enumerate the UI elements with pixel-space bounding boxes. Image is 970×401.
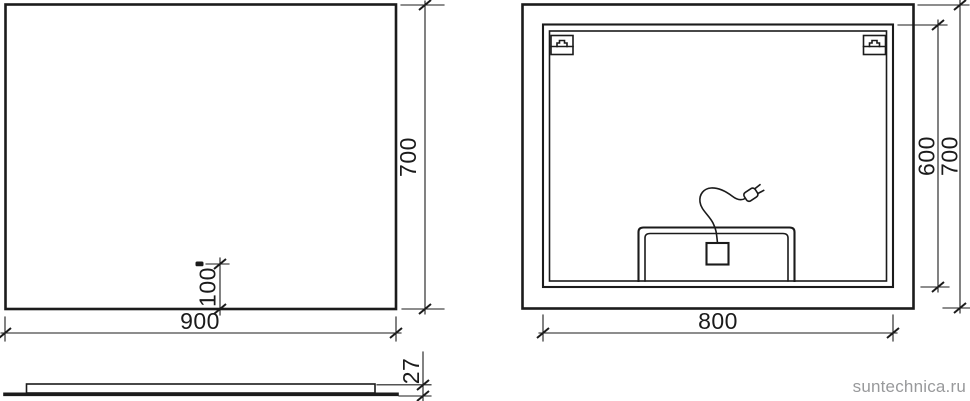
mirror-technical-drawing: 100 700 900 [0, 0, 970, 401]
side-view: 27 [5, 352, 431, 401]
back-view: 800 600 700 [523, 0, 970, 341]
backlight-housing-profile [27, 384, 376, 393]
dim-back-width: 800 [537, 308, 899, 341]
bracket-body [551, 36, 573, 55]
led-driver-box [707, 243, 729, 265]
mounting-bracket-right-icon [864, 36, 886, 55]
dim-front-width: 900 [0, 308, 402, 341]
touch-sensor-mark [196, 262, 204, 267]
dim-label-700: 700 [395, 137, 421, 177]
dim-label-700-back: 700 [937, 136, 963, 176]
dim-label-900: 900 [180, 308, 220, 334]
watermark-text: suntechnica.ru [853, 377, 966, 396]
mounting-bracket-left-icon [551, 36, 573, 55]
bracket-body [864, 36, 886, 55]
dim-label-100: 100 [195, 267, 221, 307]
front-view: 100 700 900 [0, 0, 444, 341]
dim-label-800: 800 [698, 308, 738, 334]
dim-label-27: 27 [398, 358, 424, 385]
dim-front-height: 700 [395, 0, 444, 314]
